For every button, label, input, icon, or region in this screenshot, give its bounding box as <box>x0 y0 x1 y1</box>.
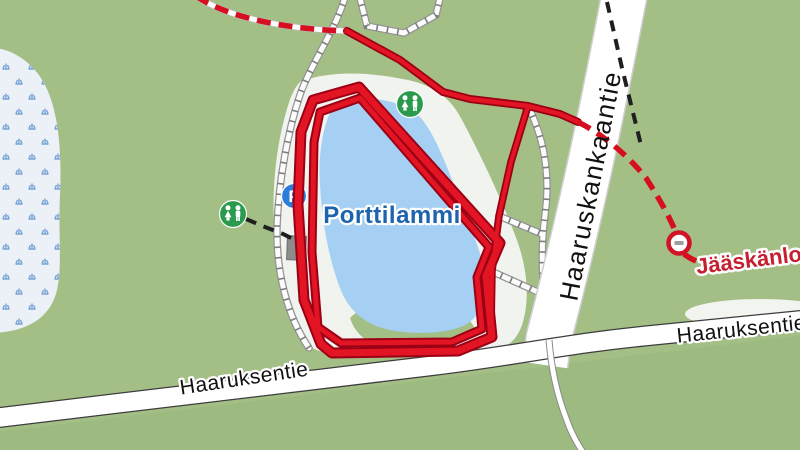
map-canvas[interactable]: P Porttilammi <box>0 0 800 450</box>
lake-label: Porttilammi <box>323 202 461 229</box>
wc-icon[interactable] <box>397 91 424 118</box>
no-entry-icon[interactable] <box>669 233 690 254</box>
wc-icon[interactable] <box>220 201 247 228</box>
map-svg[interactable]: P Porttilammi <box>0 0 800 450</box>
